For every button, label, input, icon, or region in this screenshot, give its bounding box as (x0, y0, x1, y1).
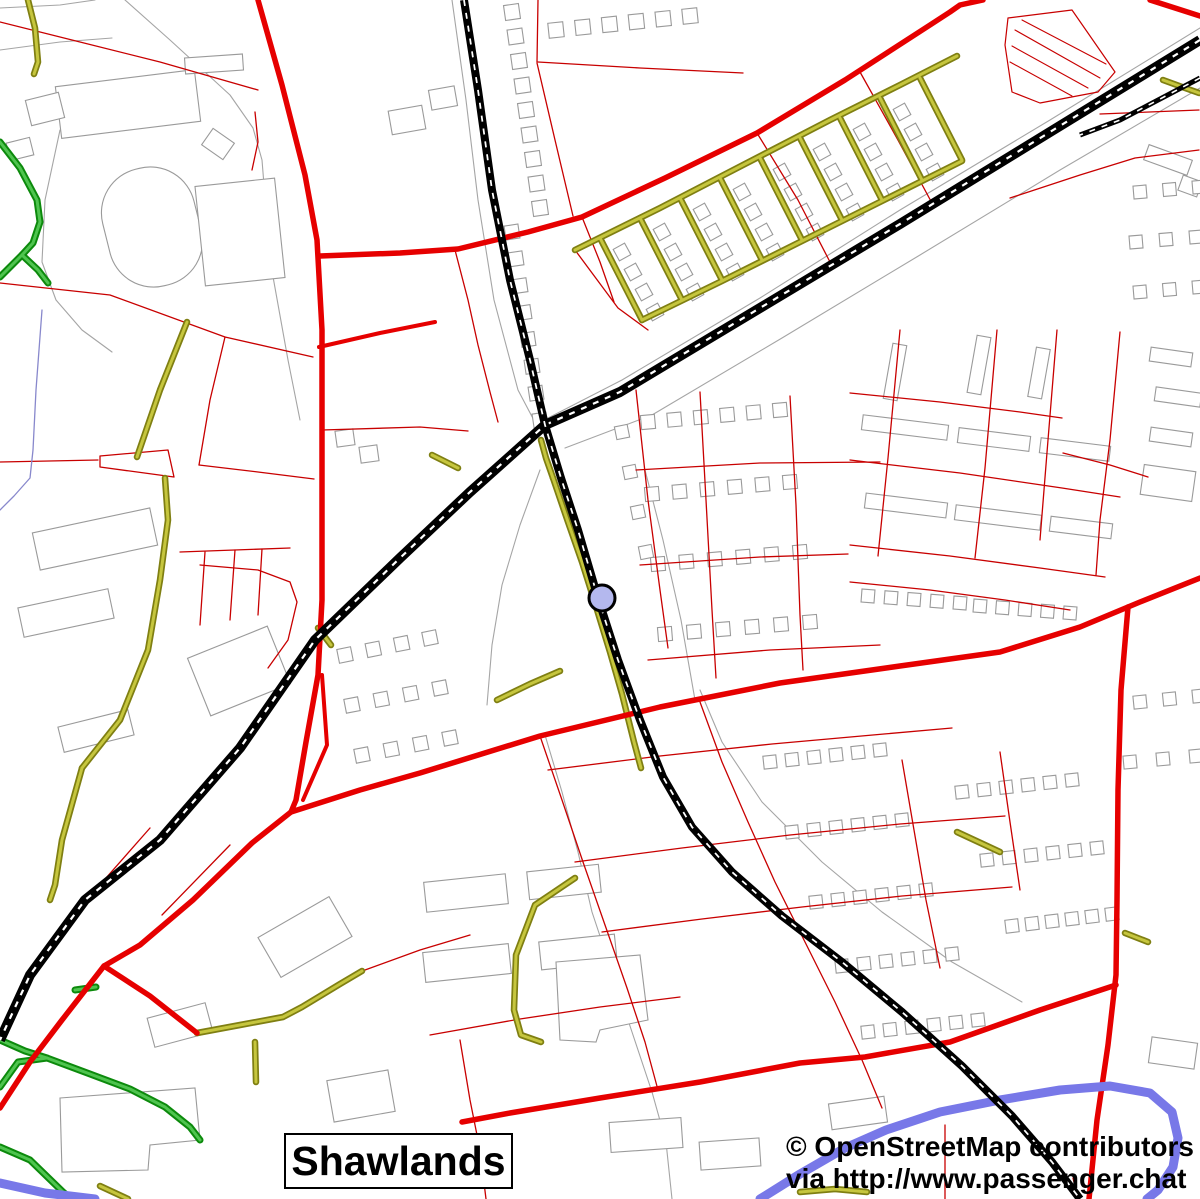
station-marker (589, 585, 615, 611)
map-label-box: Shawlands (284, 1133, 513, 1189)
attribution-line-1: © OpenStreetMap contributors (786, 1131, 1194, 1163)
map-viewport[interactable]: Shawlands © OpenStreetMap contributors v… (0, 0, 1200, 1199)
map-label-shawlands: Shawlands (291, 1138, 505, 1185)
map-canvas[interactable] (0, 0, 1200, 1199)
station-marker-icon[interactable] (589, 585, 615, 611)
allotment-plots (1005, 10, 1115, 103)
attribution-line-2: via http://www.passenger.chat (786, 1163, 1194, 1195)
map-attribution: © OpenStreetMap contributors via http://… (786, 1131, 1194, 1195)
